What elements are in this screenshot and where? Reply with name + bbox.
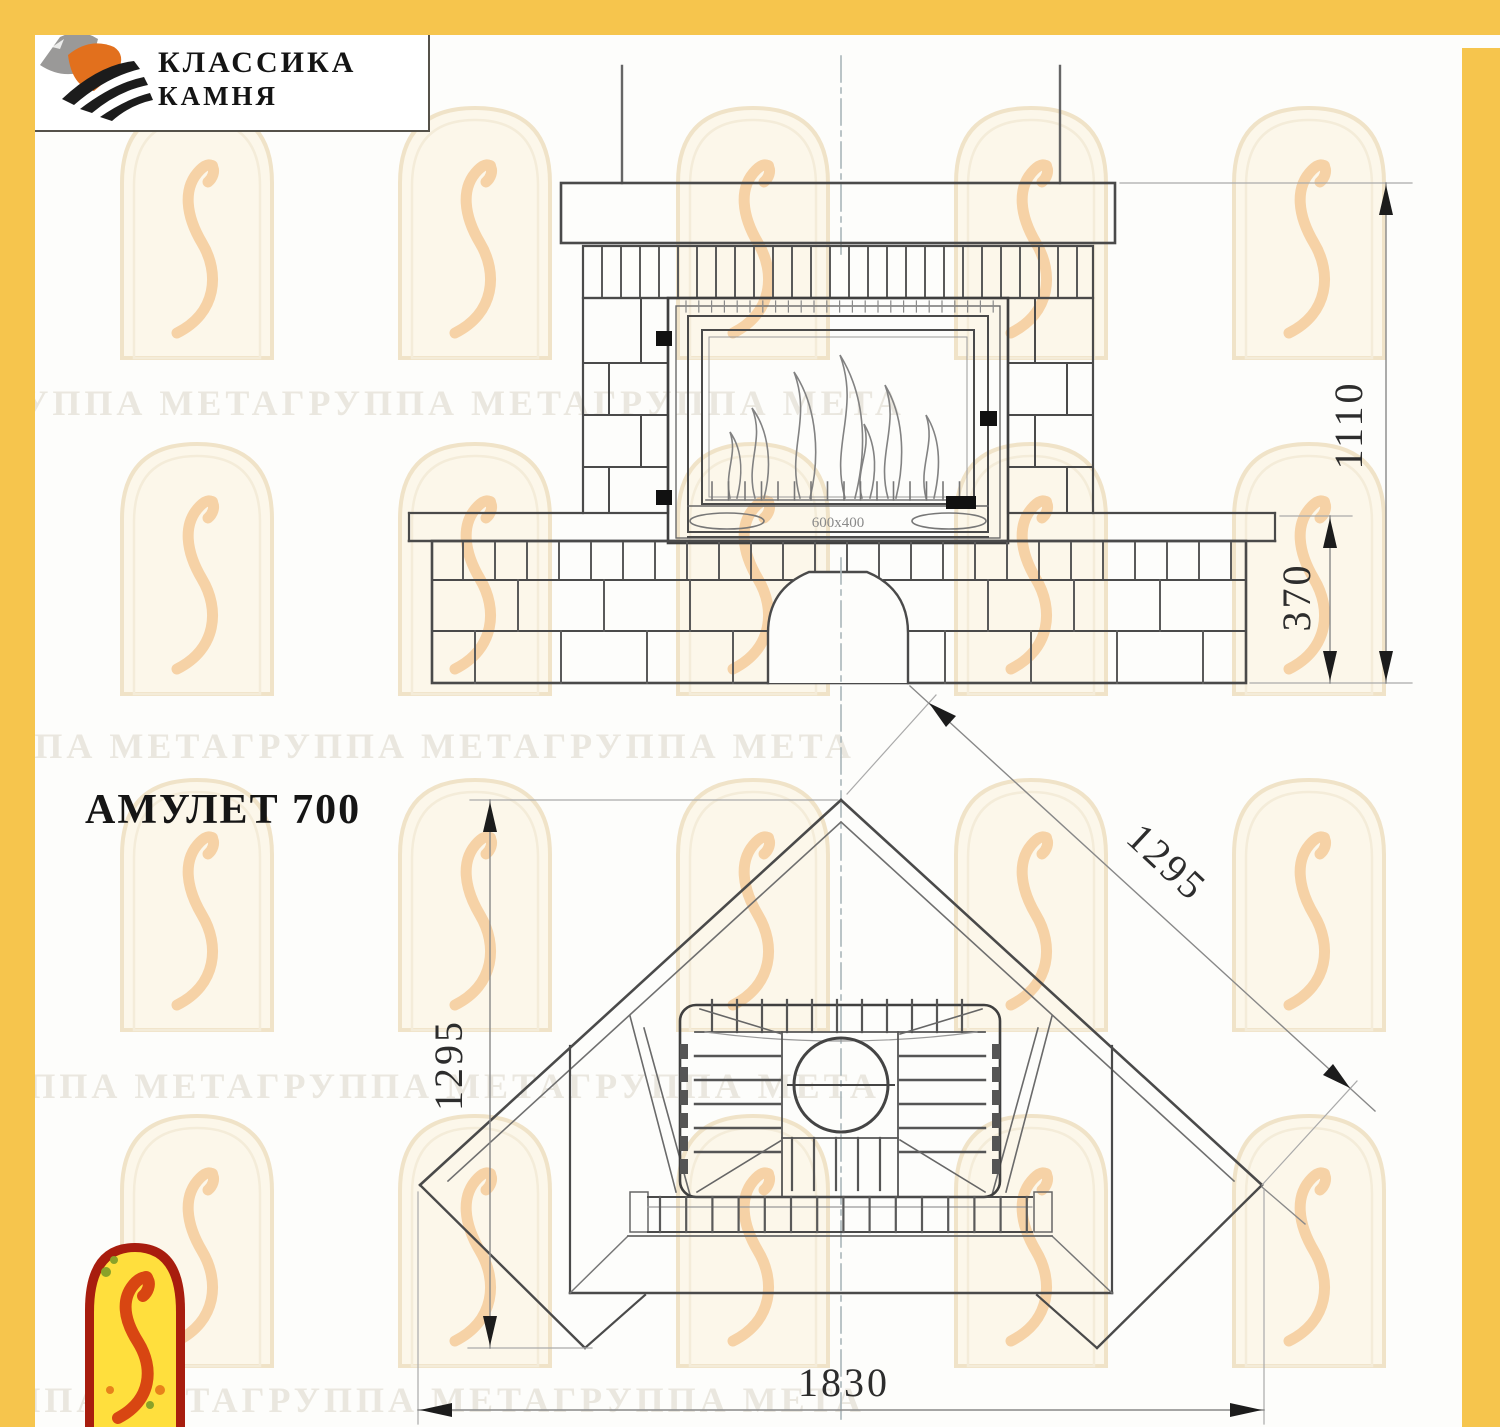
bench-body [432,541,1246,700]
plan-soldier-course [648,1197,1032,1232]
latch-icon [980,411,997,426]
soldier-course-joints [602,248,1077,296]
stone-logo-icon [40,32,153,121]
plan-insert [680,1000,1000,1197]
front-elevation-view: 600x400 [409,56,1412,700]
hinge-bottom-icon [656,490,672,505]
brand-name-line1: КЛАССИКА [158,46,356,79]
vent-right [912,513,986,529]
model-title: АМУЛЕТ 700 [85,786,361,834]
mantel-shelf [561,183,1115,243]
flames [728,355,938,498]
plan-insert-right-fins [900,1056,985,1152]
bench-arch-opening [768,572,908,683]
dim-side-right: 1295 [1118,814,1216,910]
vent-left [690,513,764,529]
hinge-top-icon [656,331,672,346]
plan-insert-left-fins [695,1056,780,1152]
plan-view: 1295 1295 1830 [418,686,1375,1425]
border-strip-top [0,0,1500,35]
insert-plate-label: 600x400 [812,515,865,531]
catalog-page: ГРУППА МЕТАГРУППА МЕТАГРУППА МЕТА ГРУППА… [0,0,1500,1427]
fireplace-drawing: 600x400 [0,0,1500,1427]
border-strip-right [1462,48,1500,1427]
border-strip-left [0,35,35,1427]
dim-front-width: 1830 [798,1360,890,1405]
dim-side-left: 1295 [426,1019,471,1111]
ash-handle-icon [946,496,976,509]
bird-emblem-icon [80,1240,190,1427]
brand-name-line2: КАМНЯ [158,81,278,111]
brand-logo: КЛАССИКА КАМНЯ [30,25,428,130]
column-right [1008,298,1093,513]
column-left [583,298,668,513]
dim-height-total: 1110 [1326,380,1371,469]
door-hardware [656,331,997,509]
front-dimensions: 1110 370 [1120,183,1412,683]
dim-bench-height: 370 [1274,563,1319,632]
brand-logo-box: КЛАССИКА КАМНЯ [28,23,430,132]
